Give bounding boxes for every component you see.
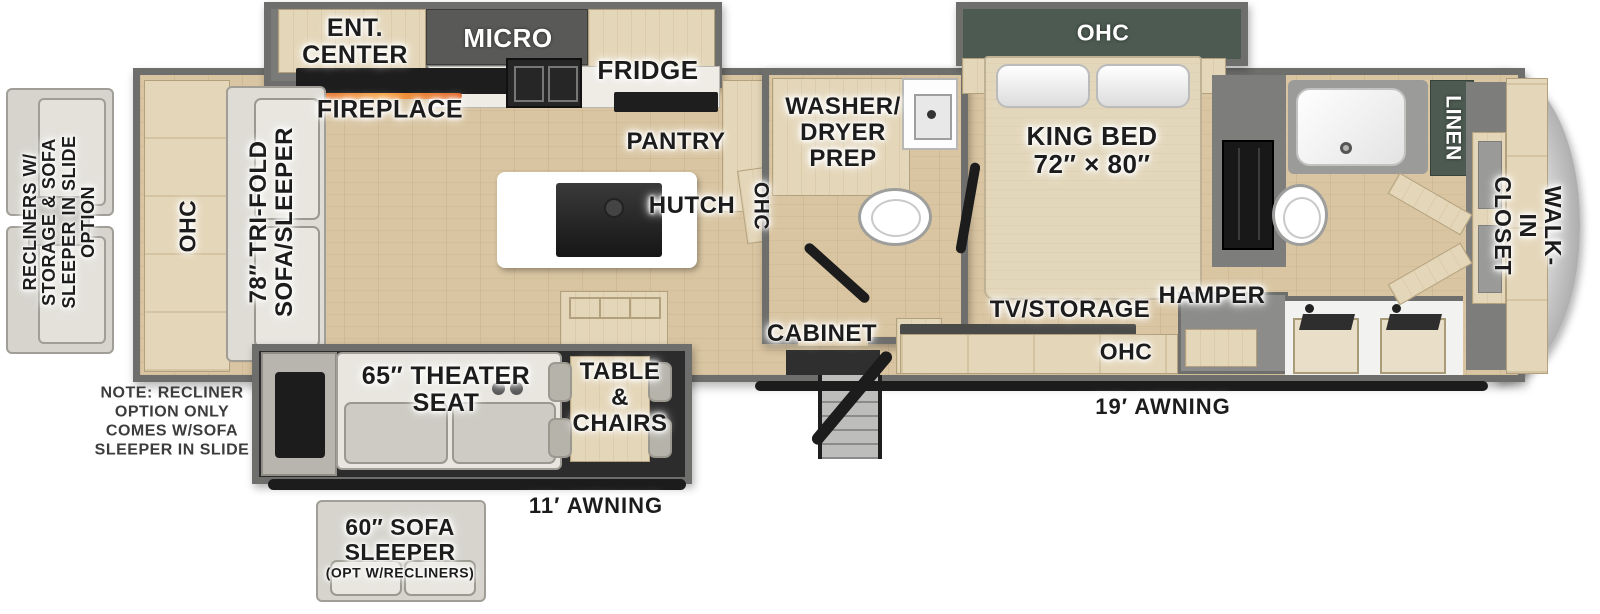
- label-hutch: HUTCH: [649, 193, 736, 219]
- label-washer-dryer-prep: WASHER/ DRYER PREP: [785, 94, 901, 172]
- awning-bar-11ft: [268, 479, 686, 490]
- island-sink: [556, 183, 662, 257]
- bedroom-tv: [1222, 140, 1274, 250]
- fridge-front-counter: [614, 92, 718, 112]
- mid-bath-sink-counter: [902, 78, 958, 150]
- mid-bath-toilet: [858, 188, 932, 246]
- tv-over-fireplace: [296, 68, 540, 94]
- front-bath-shower: [1288, 80, 1428, 174]
- rv-floorplan-canvas: ENT. CENTER MICRO FRIDGE FIREPLACE PANTR…: [0, 0, 1600, 614]
- label-king-bed: KING BED 72″ × 80″: [1026, 122, 1157, 178]
- dinette-chair-1: [548, 362, 572, 402]
- label-walk-in-closet: WALK-IN CLOSET: [1491, 176, 1565, 275]
- label-trifold-sofa: 78″ TRI-FOLD SOFA/SLEEPER: [246, 127, 298, 317]
- label-fridge: FRIDGE: [597, 56, 698, 84]
- slide-end-panel: [261, 352, 337, 476]
- label-recliner-note: NOTE: RECLINER OPTION ONLY COMES W/SOFA …: [95, 384, 250, 460]
- label-option-recliners: RECLINERS W/ STORAGE & SOFA SLEEPER IN S…: [21, 135, 99, 308]
- dinette-buffet: [560, 291, 668, 347]
- island-faucet: [604, 198, 624, 218]
- bed-pillow-left: [996, 64, 1090, 108]
- bed-pillow-right: [1096, 64, 1190, 108]
- label-bedroom-ohc: OHC: [1077, 21, 1130, 46]
- front-bath-toilet: [1272, 184, 1328, 246]
- label-awning-11: 11′ AWNING: [529, 494, 663, 518]
- label-tv-storage: TV/STORAGE: [990, 297, 1151, 323]
- label-kitchen-ohc: OHC: [749, 182, 772, 230]
- label-fireplace: FIREPLACE: [317, 97, 463, 124]
- label-rear-ohc: OHC: [176, 200, 201, 253]
- label-dresser-ohc: OHC: [1100, 340, 1153, 365]
- label-option-sofa-sleeper: 60″ SOFA SLEEPER: [345, 515, 456, 565]
- label-ent-center: ENT. CENTER: [302, 15, 408, 69]
- vanity-sink-right: [1380, 318, 1446, 374]
- label-option-sofa-sleeper-note: (OPT W/RECLINERS): [326, 565, 475, 580]
- label-linen: LINEN: [1441, 95, 1464, 161]
- label-cabinet: CABINET: [767, 321, 877, 347]
- label-hamper: HAMPER: [1158, 283, 1265, 309]
- stove-cooktop: [506, 58, 582, 108]
- awning-bar-19ft: [755, 381, 1488, 391]
- dinette-chair-2: [548, 418, 572, 458]
- vanity-sink-left: [1293, 318, 1359, 374]
- label-micro: MICRO: [463, 24, 552, 52]
- label-theater-seat: 65″ THEATER SEAT: [362, 363, 530, 417]
- label-awning-19: 19′ AWNING: [1095, 395, 1230, 419]
- label-pantry: PANTRY: [627, 129, 726, 155]
- label-table-chairs: TABLE & CHAIRS: [572, 359, 667, 437]
